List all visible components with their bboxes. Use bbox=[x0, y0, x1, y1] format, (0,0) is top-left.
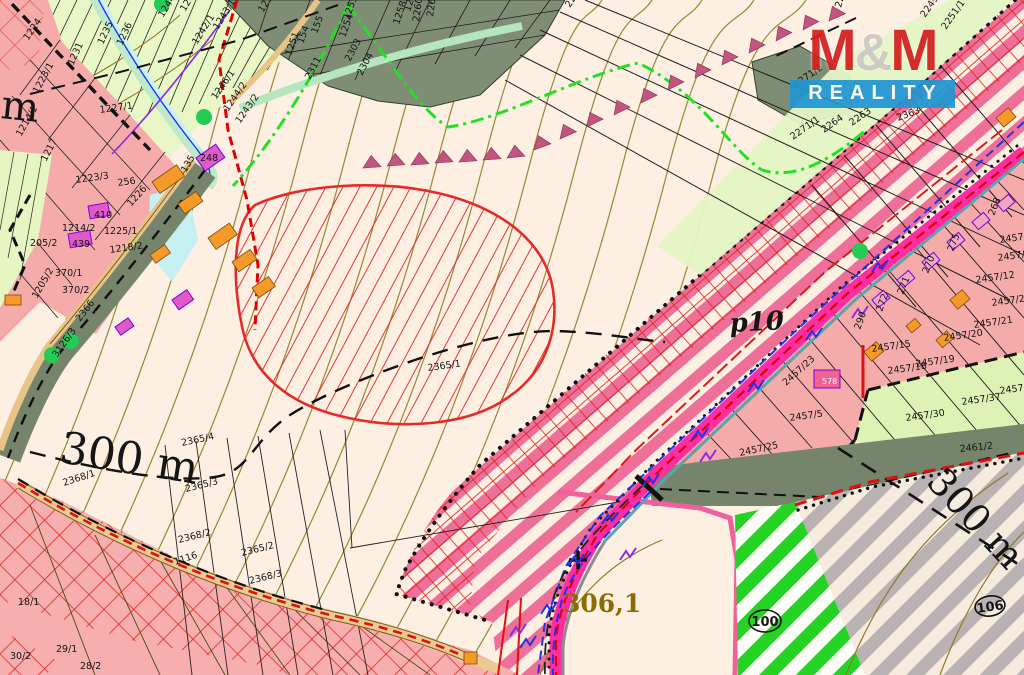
plot-label-306: 306,1 bbox=[563, 589, 641, 618]
parcel-label: 410 bbox=[94, 210, 112, 221]
svg-text:100: 100 bbox=[751, 615, 778, 630]
parcel-label: 370/2 bbox=[62, 285, 89, 296]
parcel-label: 370/1 bbox=[55, 268, 82, 279]
cadastral-map-canvas: 300 m m 300 m p10 306,1 100 106 12241223… bbox=[0, 0, 1024, 675]
parcel-label: 28/2 bbox=[80, 661, 101, 672]
parcel-label: 29/1 bbox=[56, 644, 77, 655]
parcel-label: 578 bbox=[822, 377, 837, 386]
parcel-label: 248 bbox=[200, 153, 218, 164]
logo-ampersand: & bbox=[855, 24, 891, 82]
parcel-label: 439 bbox=[72, 239, 90, 250]
logo-reality-banner: REALITY bbox=[790, 80, 955, 108]
parcel-label: 30/2 bbox=[10, 651, 31, 662]
parcel-label: 18/1 bbox=[18, 597, 39, 608]
hatched-zone-outline bbox=[236, 185, 555, 424]
parcel-label: 205/2 bbox=[30, 238, 57, 249]
parcel-label: 1214/2 bbox=[62, 223, 95, 234]
zone-label-p10: p10 bbox=[729, 306, 785, 339]
logo-mm-text: M&M bbox=[790, 24, 955, 80]
tree-dot-icon bbox=[196, 109, 212, 125]
mm-reality-logo: M&M REALITY bbox=[790, 24, 955, 108]
parcel-label: 1225/1 bbox=[104, 226, 137, 237]
tree-dot-icon bbox=[852, 243, 868, 259]
